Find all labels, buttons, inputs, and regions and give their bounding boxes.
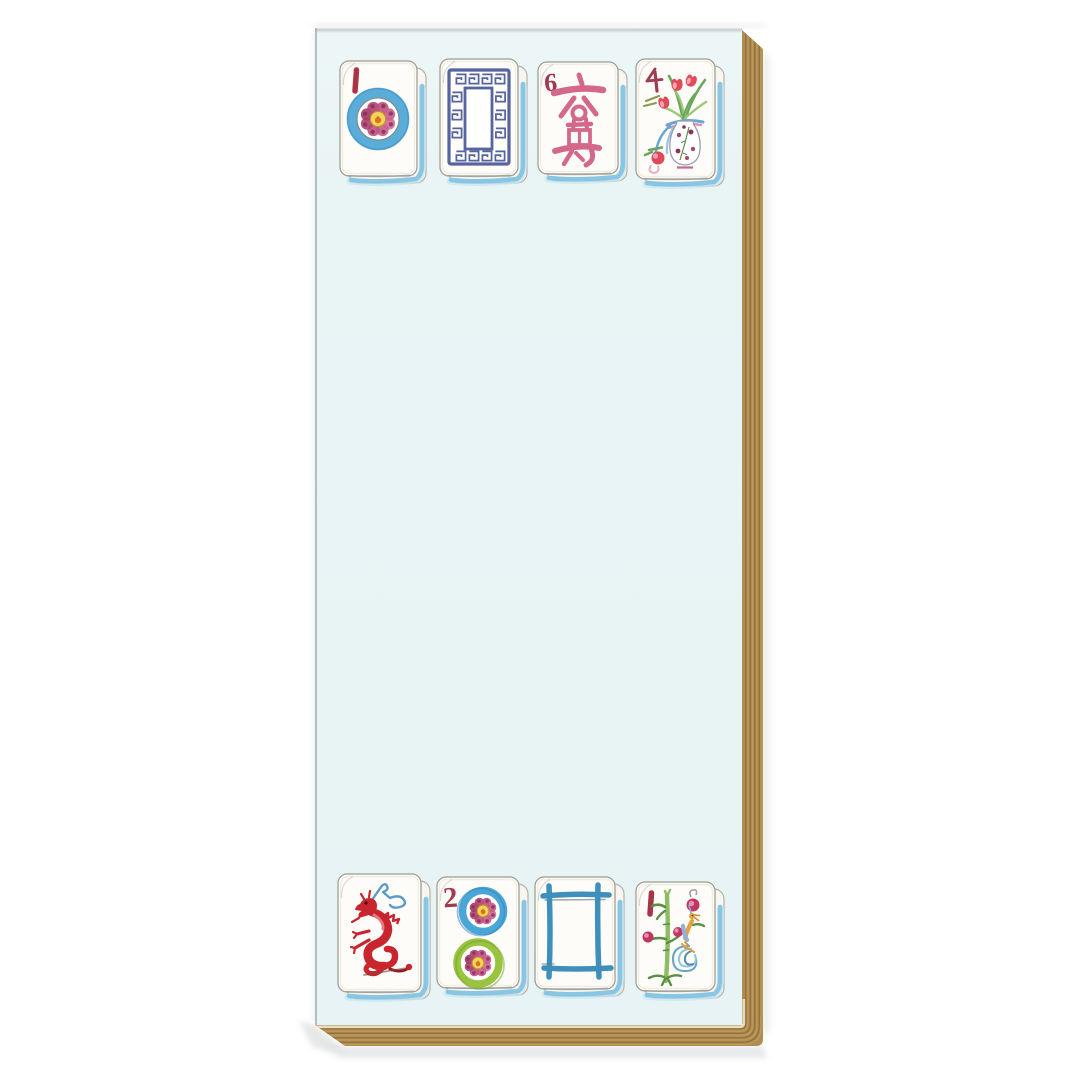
svg-text:2: 2 xyxy=(442,882,459,915)
